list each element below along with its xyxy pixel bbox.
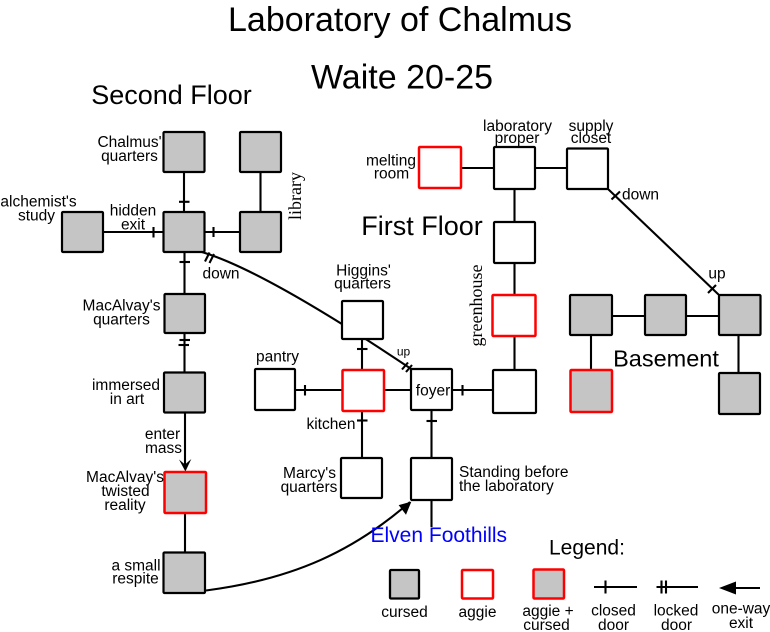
svg-text:the laboratory: the laboratory [459,478,554,495]
svg-text:mass: mass [145,440,182,457]
svg-text:exit: exit [121,217,146,234]
svg-text:study: study [18,208,55,225]
svg-text:cursed: cursed [523,617,570,632]
svg-text:kitchen: kitchen [306,416,355,433]
svg-text:down: down [622,187,659,204]
svg-text:up: up [708,266,725,283]
svg-text:reality: reality [104,497,146,514]
svg-text:quarters: quarters [334,276,391,293]
svg-text:closet: closet [571,130,612,147]
svg-text:library: library [285,172,305,220]
svg-text:door: door [598,617,629,632]
svg-text:Waite 20-25: Waite 20-25 [311,59,493,97]
svg-text:room: room [374,166,409,183]
svg-text:proper: proper [495,130,540,147]
svg-text:First Floor: First Floor [361,211,483,241]
svg-text:Elven Foothills: Elven Foothills [371,524,508,547]
svg-text:greenhouse: greenhouse [466,265,486,347]
svg-text:cursed: cursed [381,604,428,621]
svg-text:exit: exit [729,615,754,632]
svg-text:pantry: pantry [256,349,299,366]
svg-text:respite: respite [112,571,159,588]
svg-text:in art: in art [110,391,145,408]
svg-text:Basement: Basement [613,346,719,372]
svg-text:aggie: aggie [459,604,497,621]
svg-text:foyer: foyer [416,383,450,400]
svg-text:Legend:: Legend: [549,537,625,560]
svg-text:door: door [661,617,692,632]
svg-text:quarters: quarters [93,312,150,329]
svg-text:quarters: quarters [101,148,158,165]
svg-text:Laboratory of Chalmus: Laboratory of Chalmus [228,1,572,39]
svg-text:Second Floor: Second Floor [91,80,252,110]
svg-text:quarters: quarters [281,479,338,496]
svg-text:down: down [202,266,239,283]
svg-text:up: up [397,345,411,359]
